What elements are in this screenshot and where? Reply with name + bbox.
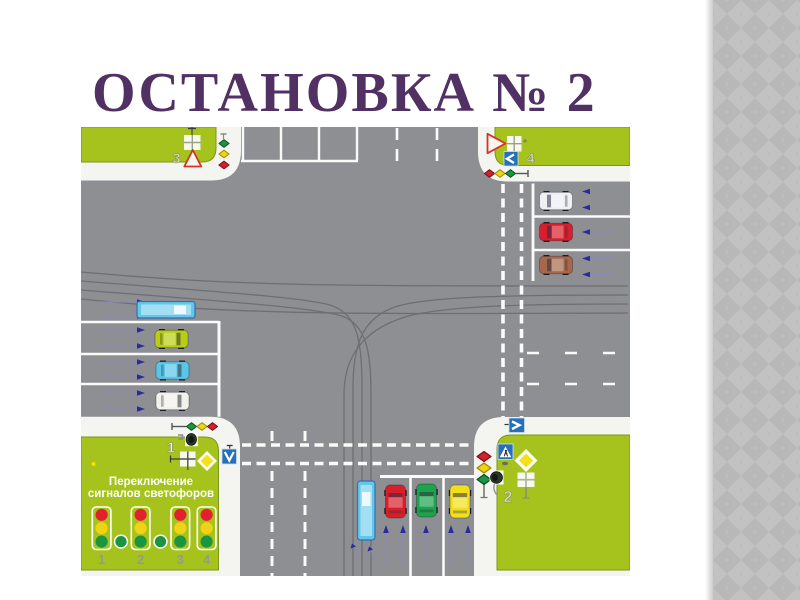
svg-text:2: 2	[504, 489, 513, 506]
svg-text:4: 4	[527, 150, 535, 166]
svg-text:Переключение: Переключение	[109, 476, 193, 488]
svg-text:1: 1	[167, 439, 175, 455]
svg-text:3: 3	[177, 552, 184, 567]
svg-text:4: 4	[203, 552, 211, 567]
svg-text:сигналов светофоров: сигналов светофоров	[88, 488, 214, 500]
svg-text:3: 3	[173, 150, 181, 166]
svg-text:1: 1	[98, 552, 105, 567]
svg-text:2: 2	[137, 552, 144, 567]
